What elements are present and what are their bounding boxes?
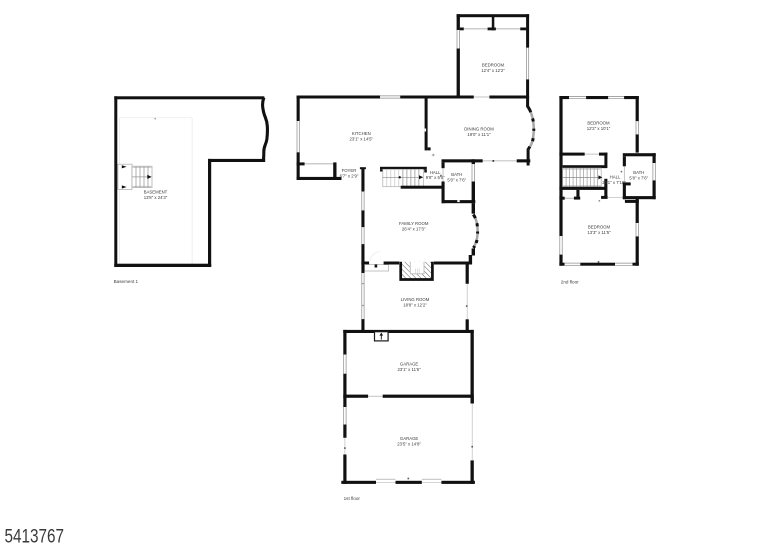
svg-text:BEDROOM: BEDROOM — [482, 62, 505, 67]
svg-text:LIVING ROOM: LIVING ROOM — [401, 297, 430, 302]
svg-text:9'8" x 5'9": 9'8" x 5'9" — [426, 175, 445, 180]
svg-text:Basement 1: Basement 1 — [114, 279, 139, 284]
svg-text:KITCHEN: KITCHEN — [352, 131, 371, 136]
svg-text:12'2" x 10'1": 12'2" x 10'1" — [587, 126, 611, 131]
svg-text:2nd floor: 2nd floor — [561, 280, 579, 285]
svg-text:26'4" x 17'3": 26'4" x 17'3" — [402, 226, 426, 231]
svg-text:5'8" x 7'6": 5'8" x 7'6" — [629, 175, 648, 180]
svg-text:12'4" x 12'2": 12'4" x 12'2" — [481, 68, 505, 73]
svg-text:GARAGE: GARAGE — [400, 361, 419, 366]
svg-text:18'8" x 12'2": 18'8" x 12'2" — [403, 303, 427, 308]
svg-text:5413767: 5413767 — [5, 526, 65, 546]
svg-text:23'1" x 14'5": 23'1" x 14'5" — [350, 137, 374, 142]
svg-text:23'1" x 11'6": 23'1" x 11'6" — [397, 367, 421, 372]
svg-text:1st floor: 1st floor — [344, 496, 361, 501]
svg-text:13'3" x 11'5": 13'3" x 11'5" — [587, 230, 611, 235]
svg-text:6'7" x 2'9": 6'7" x 2'9" — [340, 173, 359, 178]
svg-text:FAMILY ROOM: FAMILY ROOM — [399, 221, 429, 226]
svg-text:DINING ROOM: DINING ROOM — [464, 127, 494, 132]
svg-text:13'8" x 24'3": 13'8" x 24'3" — [144, 195, 168, 200]
svg-text:20'1" x 7'10": 20'1" x 7'10" — [602, 180, 626, 185]
svg-text:23'5" x 14'8": 23'5" x 14'8" — [397, 442, 421, 447]
svg-text:19'0" x 11'1": 19'0" x 11'1" — [467, 132, 491, 137]
svg-text:BASEMENT: BASEMENT — [144, 190, 168, 195]
svg-text:BEDROOM: BEDROOM — [588, 225, 611, 230]
svg-text:GARAGE: GARAGE — [400, 436, 419, 441]
svg-text:FOYER: FOYER — [342, 168, 357, 173]
svg-text:5'0" x 7'6": 5'0" x 7'6" — [447, 177, 466, 182]
svg-text:BEDROOM: BEDROOM — [587, 121, 610, 126]
